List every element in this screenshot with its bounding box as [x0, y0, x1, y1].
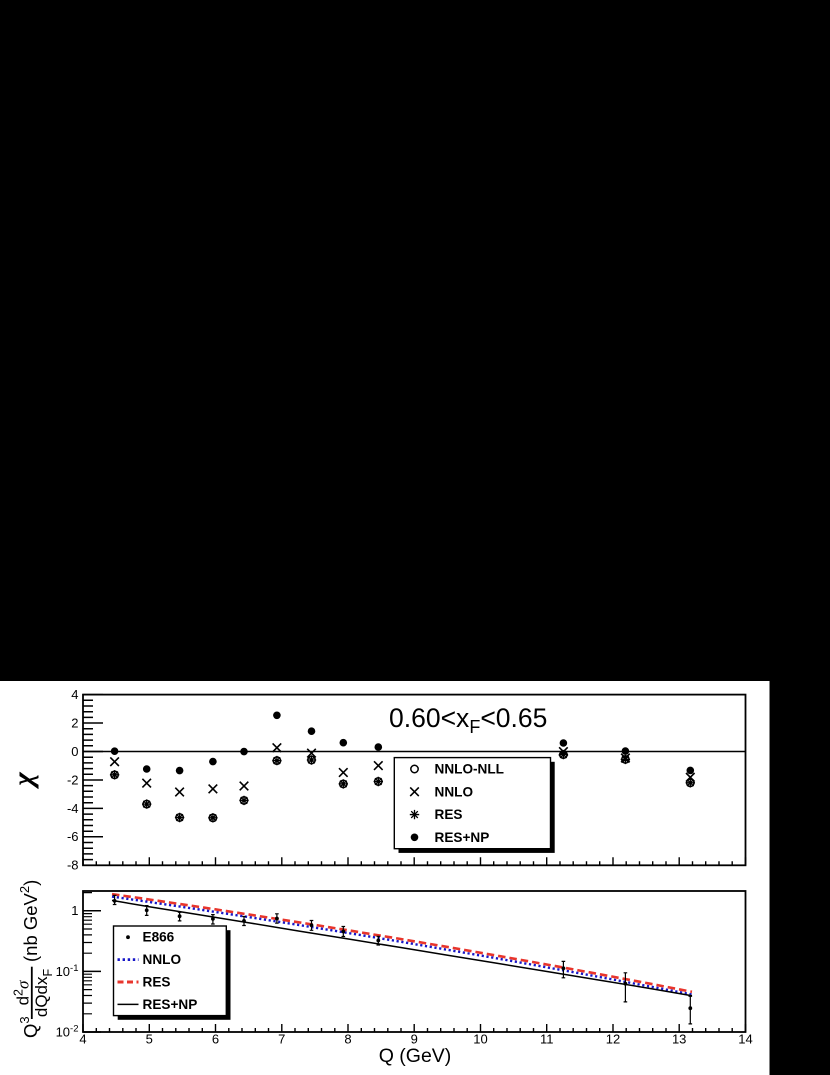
svg-text:RES: RES: [143, 975, 171, 990]
svg-text:NNLO-NLL: NNLO-NLL: [435, 762, 504, 777]
svg-text:10: 10: [473, 1032, 487, 1047]
svg-text:Q (GeV): Q (GeV): [379, 1045, 452, 1067]
svg-text:1: 1: [71, 903, 78, 918]
svg-text:2: 2: [71, 715, 78, 730]
svg-text:0.60<xF<0.65: 0.60<xF<0.65: [389, 703, 547, 737]
svg-text:NNLO: NNLO: [143, 952, 182, 967]
svg-text:NNLO: NNLO: [435, 784, 474, 799]
svg-text:RES: RES: [435, 807, 463, 822]
svg-text:14: 14: [738, 1032, 752, 1047]
svg-text:RES+NP: RES+NP: [143, 997, 198, 1012]
svg-text:4: 4: [79, 1032, 86, 1047]
svg-text:5: 5: [146, 1032, 153, 1047]
svg-text:E866: E866: [143, 930, 175, 945]
svg-text:-8: -8: [67, 858, 79, 873]
svg-text:11: 11: [540, 1032, 554, 1047]
svg-text:-6: -6: [67, 829, 79, 844]
svg-text:13: 13: [672, 1032, 686, 1047]
svg-text:RES+NP: RES+NP: [435, 830, 490, 845]
svg-text:-4: -4: [67, 801, 79, 816]
svg-text:7: 7: [278, 1032, 285, 1047]
svg-text:4: 4: [71, 687, 78, 702]
svg-text:0: 0: [71, 744, 78, 759]
svg-text:-2: -2: [67, 772, 79, 787]
svg-text:12: 12: [606, 1032, 620, 1047]
svg-text:6: 6: [212, 1032, 219, 1047]
svg-text:8: 8: [344, 1032, 351, 1047]
